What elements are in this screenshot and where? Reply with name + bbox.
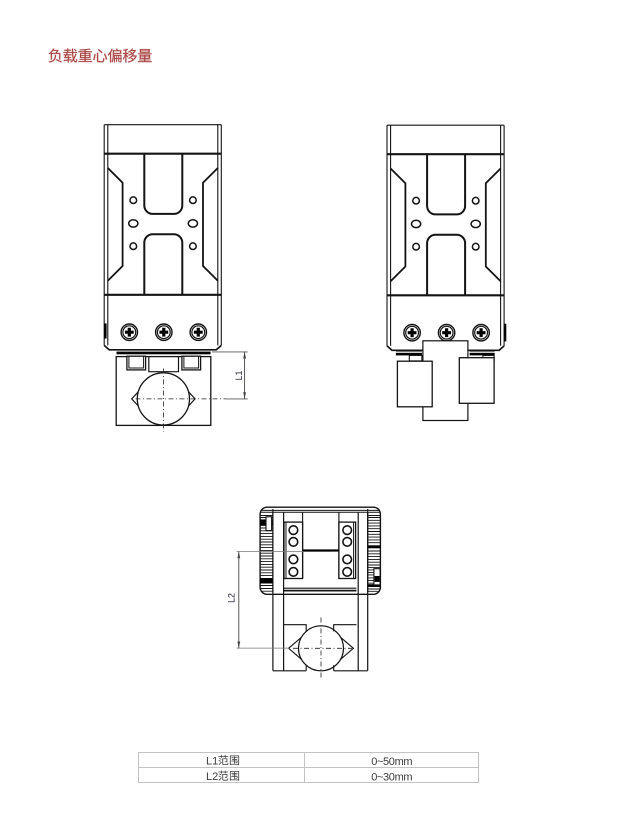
svg-text:0~30mm: 0~30mm	[371, 772, 412, 784]
svg-text:L2: L2	[206, 771, 218, 783]
svg-text:L2: L2	[226, 593, 236, 603]
svg-text:L1: L1	[234, 371, 244, 381]
svg-text:L1: L1	[206, 756, 218, 768]
svg-text:0~50mm: 0~50mm	[371, 756, 412, 768]
